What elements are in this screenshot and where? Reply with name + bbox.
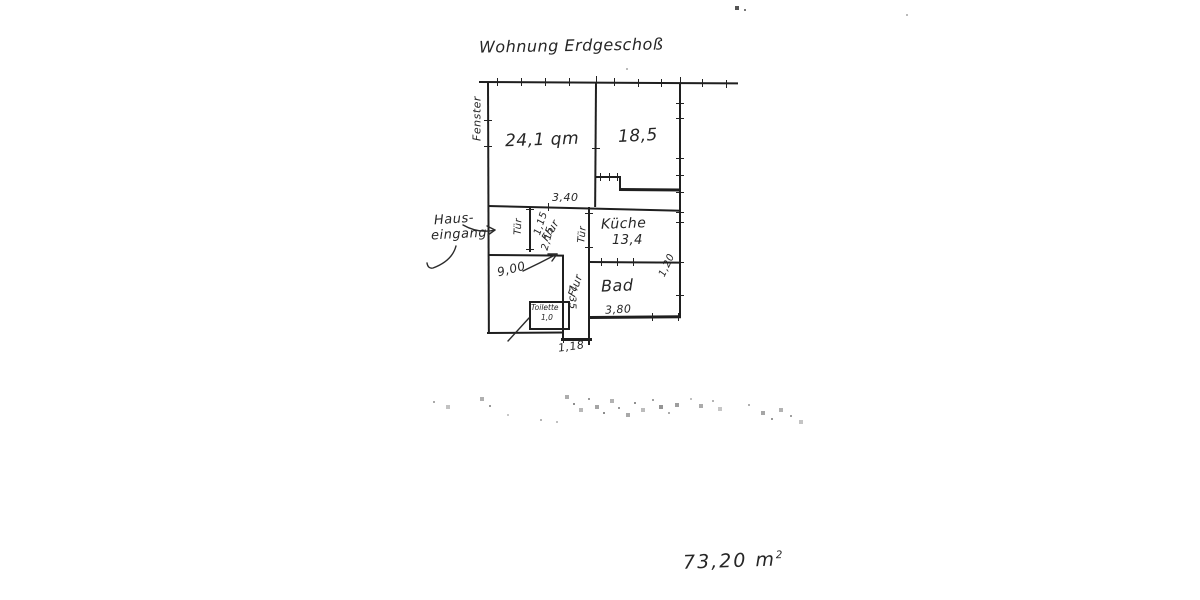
- scan-noise: [0, 0, 2, 2]
- tick: [680, 77, 681, 90]
- dim-hall-lower-length: 2,35: [567, 278, 578, 318]
- wall-hall-north: [488, 205, 681, 212]
- tick: [609, 173, 610, 181]
- bedroom-area: 18,5: [618, 125, 659, 147]
- wall-entry-door: [529, 208, 531, 252]
- annotation-strokes: [0, 0, 1200, 600]
- wall-hall-south: [488, 254, 564, 257]
- wall-step-c: [619, 188, 681, 192]
- tick: [652, 313, 653, 321]
- tick: [676, 158, 684, 159]
- wall-bath-bottom: [590, 315, 681, 319]
- tick: [661, 79, 662, 87]
- dim-bath-width: 3,80: [605, 302, 632, 316]
- tick: [617, 173, 618, 181]
- tick: [678, 313, 679, 321]
- dim-lower-room-area: 9,00: [496, 259, 527, 280]
- tick: [484, 120, 492, 121]
- total-area-label: 73,20 m2: [683, 548, 785, 574]
- entrance-label-line2: eingang: [431, 226, 488, 244]
- tick: [600, 173, 601, 181]
- handwriting-flourish: [427, 246, 456, 268]
- tick: [702, 79, 703, 87]
- tick: [726, 80, 727, 88]
- kitchen-name: Küche: [601, 215, 647, 233]
- tick: [676, 192, 684, 193]
- tick: [589, 335, 590, 343]
- wall-top: [479, 81, 738, 84]
- tick: [676, 262, 684, 263]
- tick: [676, 103, 684, 104]
- tick: [585, 247, 593, 248]
- wall-bottom-left: [487, 331, 564, 334]
- tick: [497, 78, 498, 86]
- tick: [638, 79, 639, 87]
- tick: [614, 78, 615, 86]
- total-area-value: 73,20 m: [683, 549, 777, 574]
- living-room-area: 24,1 qm: [505, 129, 580, 152]
- tick: [676, 212, 684, 213]
- wall-room-divider: [594, 83, 597, 207]
- kitchen-area: 13,4: [612, 233, 643, 248]
- tick: [676, 295, 684, 296]
- dim-hall-length: 3,40: [552, 191, 579, 204]
- total-area-exponent: 2: [776, 549, 785, 561]
- dim-hall-exit-width: 1,18: [557, 338, 585, 355]
- tick: [596, 76, 597, 89]
- tick: [633, 258, 634, 266]
- tick: [601, 258, 602, 266]
- tick: [676, 175, 684, 176]
- toilet-leader-line: [508, 318, 529, 341]
- kitchen-door-label: Tür: [576, 225, 589, 243]
- tick: [592, 148, 600, 149]
- tick: [585, 213, 593, 214]
- tick: [548, 203, 549, 211]
- tick: [676, 222, 684, 223]
- toilet-area: 1,0: [541, 313, 553, 322]
- window-label: Fenster: [471, 94, 484, 144]
- page-title: Wohnung Erdgeschoß: [479, 34, 664, 56]
- entry-door-label: Tür: [513, 218, 525, 236]
- dim-bath-side: 1,20: [657, 252, 677, 279]
- bathroom-name: Bad: [601, 275, 634, 295]
- tick: [526, 249, 534, 250]
- tick: [521, 78, 522, 86]
- tick: [545, 78, 546, 86]
- scanned-floorplan-page: Wohnung Erdgeschoß: [0, 0, 1200, 600]
- toilet-name: Toilette: [531, 303, 559, 312]
- tick: [484, 146, 492, 147]
- tick: [569, 78, 570, 86]
- tick: [676, 118, 684, 119]
- tick: [526, 209, 534, 210]
- tick: [617, 258, 618, 266]
